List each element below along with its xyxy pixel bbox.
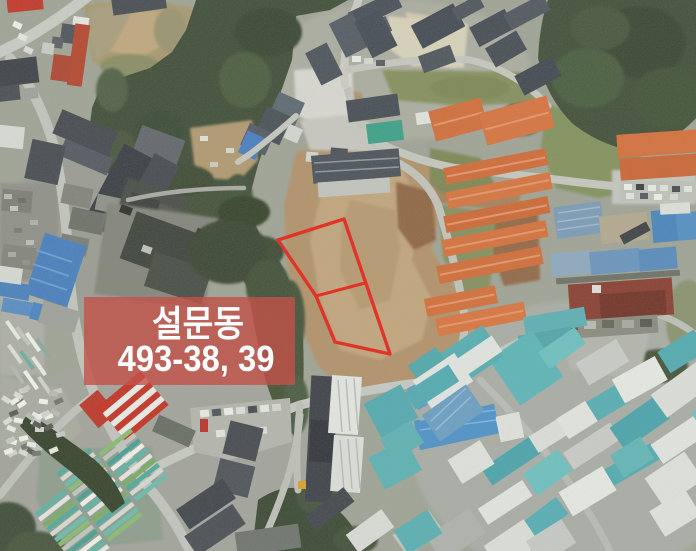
- svg-text:493-38, 39: 493-38, 39: [118, 338, 275, 379]
